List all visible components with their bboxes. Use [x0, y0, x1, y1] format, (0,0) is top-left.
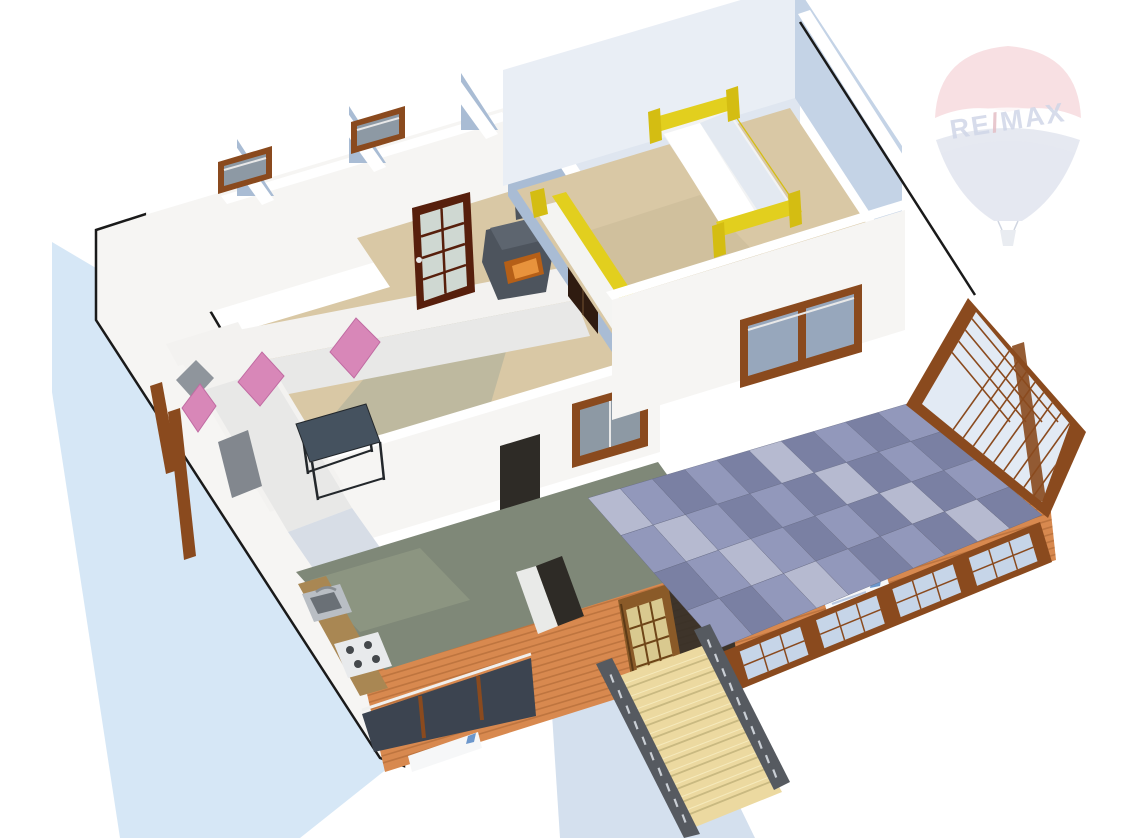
door-handle	[416, 257, 422, 263]
hob-burner	[364, 641, 372, 649]
bed-post	[712, 222, 726, 258]
balloon-cable	[998, 221, 1002, 230]
lattice-line	[1058, 230, 1128, 422]
lattice-line	[1084, 308, 1128, 560]
bed-post	[726, 86, 740, 122]
hob-burner	[346, 646, 354, 654]
balloon-basket	[1000, 230, 1016, 246]
balloon-cable	[1014, 221, 1018, 230]
lattice-line	[1100, 308, 1128, 560]
remax-balloon-watermark: RE/MAX	[932, 46, 1084, 246]
floorplan-render: RE/MAX	[0, 0, 1128, 838]
lattice-line	[1090, 230, 1128, 422]
lattice-line	[1042, 230, 1128, 422]
hob-burner	[354, 660, 362, 668]
lattice-line	[1106, 230, 1128, 422]
lattice-line	[1074, 230, 1128, 422]
interior-glass-door	[412, 192, 475, 310]
bed-post	[648, 108, 662, 144]
house-3d-scene: RE/MAX	[0, 0, 1128, 838]
lattice-line	[1116, 308, 1128, 560]
lattice-line	[1122, 230, 1128, 422]
bed-post	[788, 190, 802, 228]
hob-burner	[372, 655, 380, 663]
